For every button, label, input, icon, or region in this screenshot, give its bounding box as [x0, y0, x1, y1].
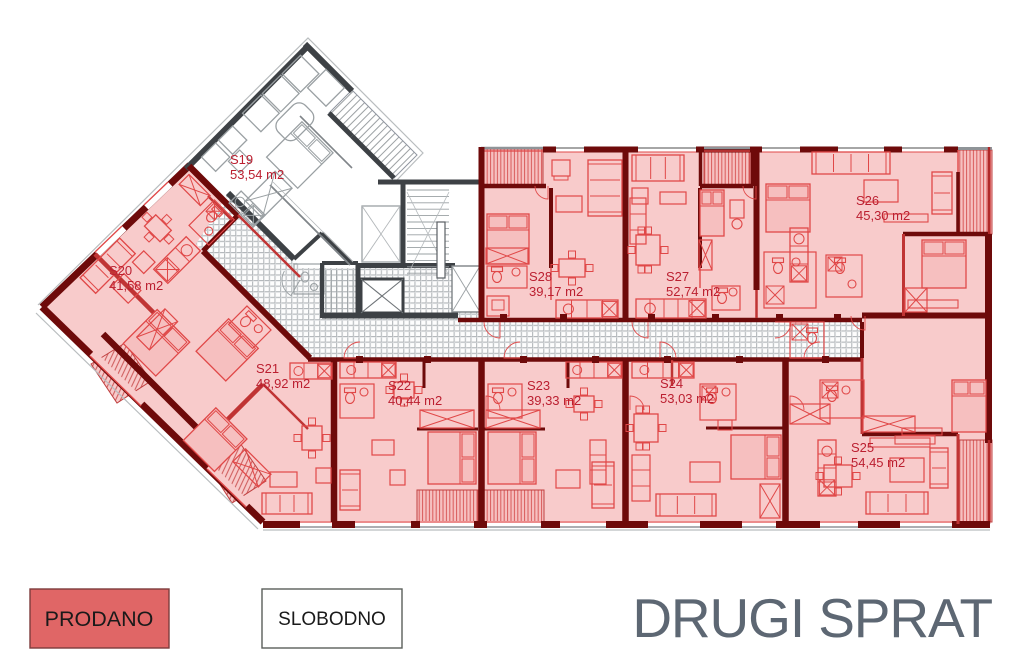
- svg-text:48,92 m2: 48,92 m2: [256, 376, 310, 391]
- svg-text:52,74 m2: 52,74 m2: [666, 284, 720, 299]
- svg-text:53,03 m2: 53,03 m2: [660, 391, 714, 406]
- svg-text:45,30 m2: 45,30 m2: [856, 208, 910, 223]
- svg-text:S21: S21: [256, 361, 279, 376]
- svg-text:39,33 m2: 39,33 m2: [527, 393, 581, 408]
- svg-text:S20: S20: [109, 263, 132, 278]
- svg-text:S26: S26: [856, 193, 879, 208]
- svg-text:40,44 m2: 40,44 m2: [388, 393, 442, 408]
- svg-text:41,58 m2: 41,58 m2: [109, 278, 163, 293]
- svg-text:S25: S25: [851, 440, 874, 455]
- svg-text:S19: S19: [230, 152, 253, 167]
- svg-text:S23: S23: [527, 378, 550, 393]
- svg-text:39,17 m2: 39,17 m2: [529, 284, 583, 299]
- svg-text:DRUGI SPRAT: DRUGI SPRAT: [632, 587, 992, 649]
- svg-text:PRODANO: PRODANO: [45, 607, 154, 631]
- svg-text:S27: S27: [666, 269, 689, 284]
- svg-text:53,54 m2: 53,54 m2: [230, 167, 284, 182]
- svg-text:S24: S24: [660, 376, 683, 391]
- svg-text:S22: S22: [388, 378, 411, 393]
- svg-text:SLOBODNO: SLOBODNO: [278, 609, 386, 630]
- svg-text:S28: S28: [529, 269, 552, 284]
- svg-text:54,45 m2: 54,45 m2: [851, 455, 905, 470]
